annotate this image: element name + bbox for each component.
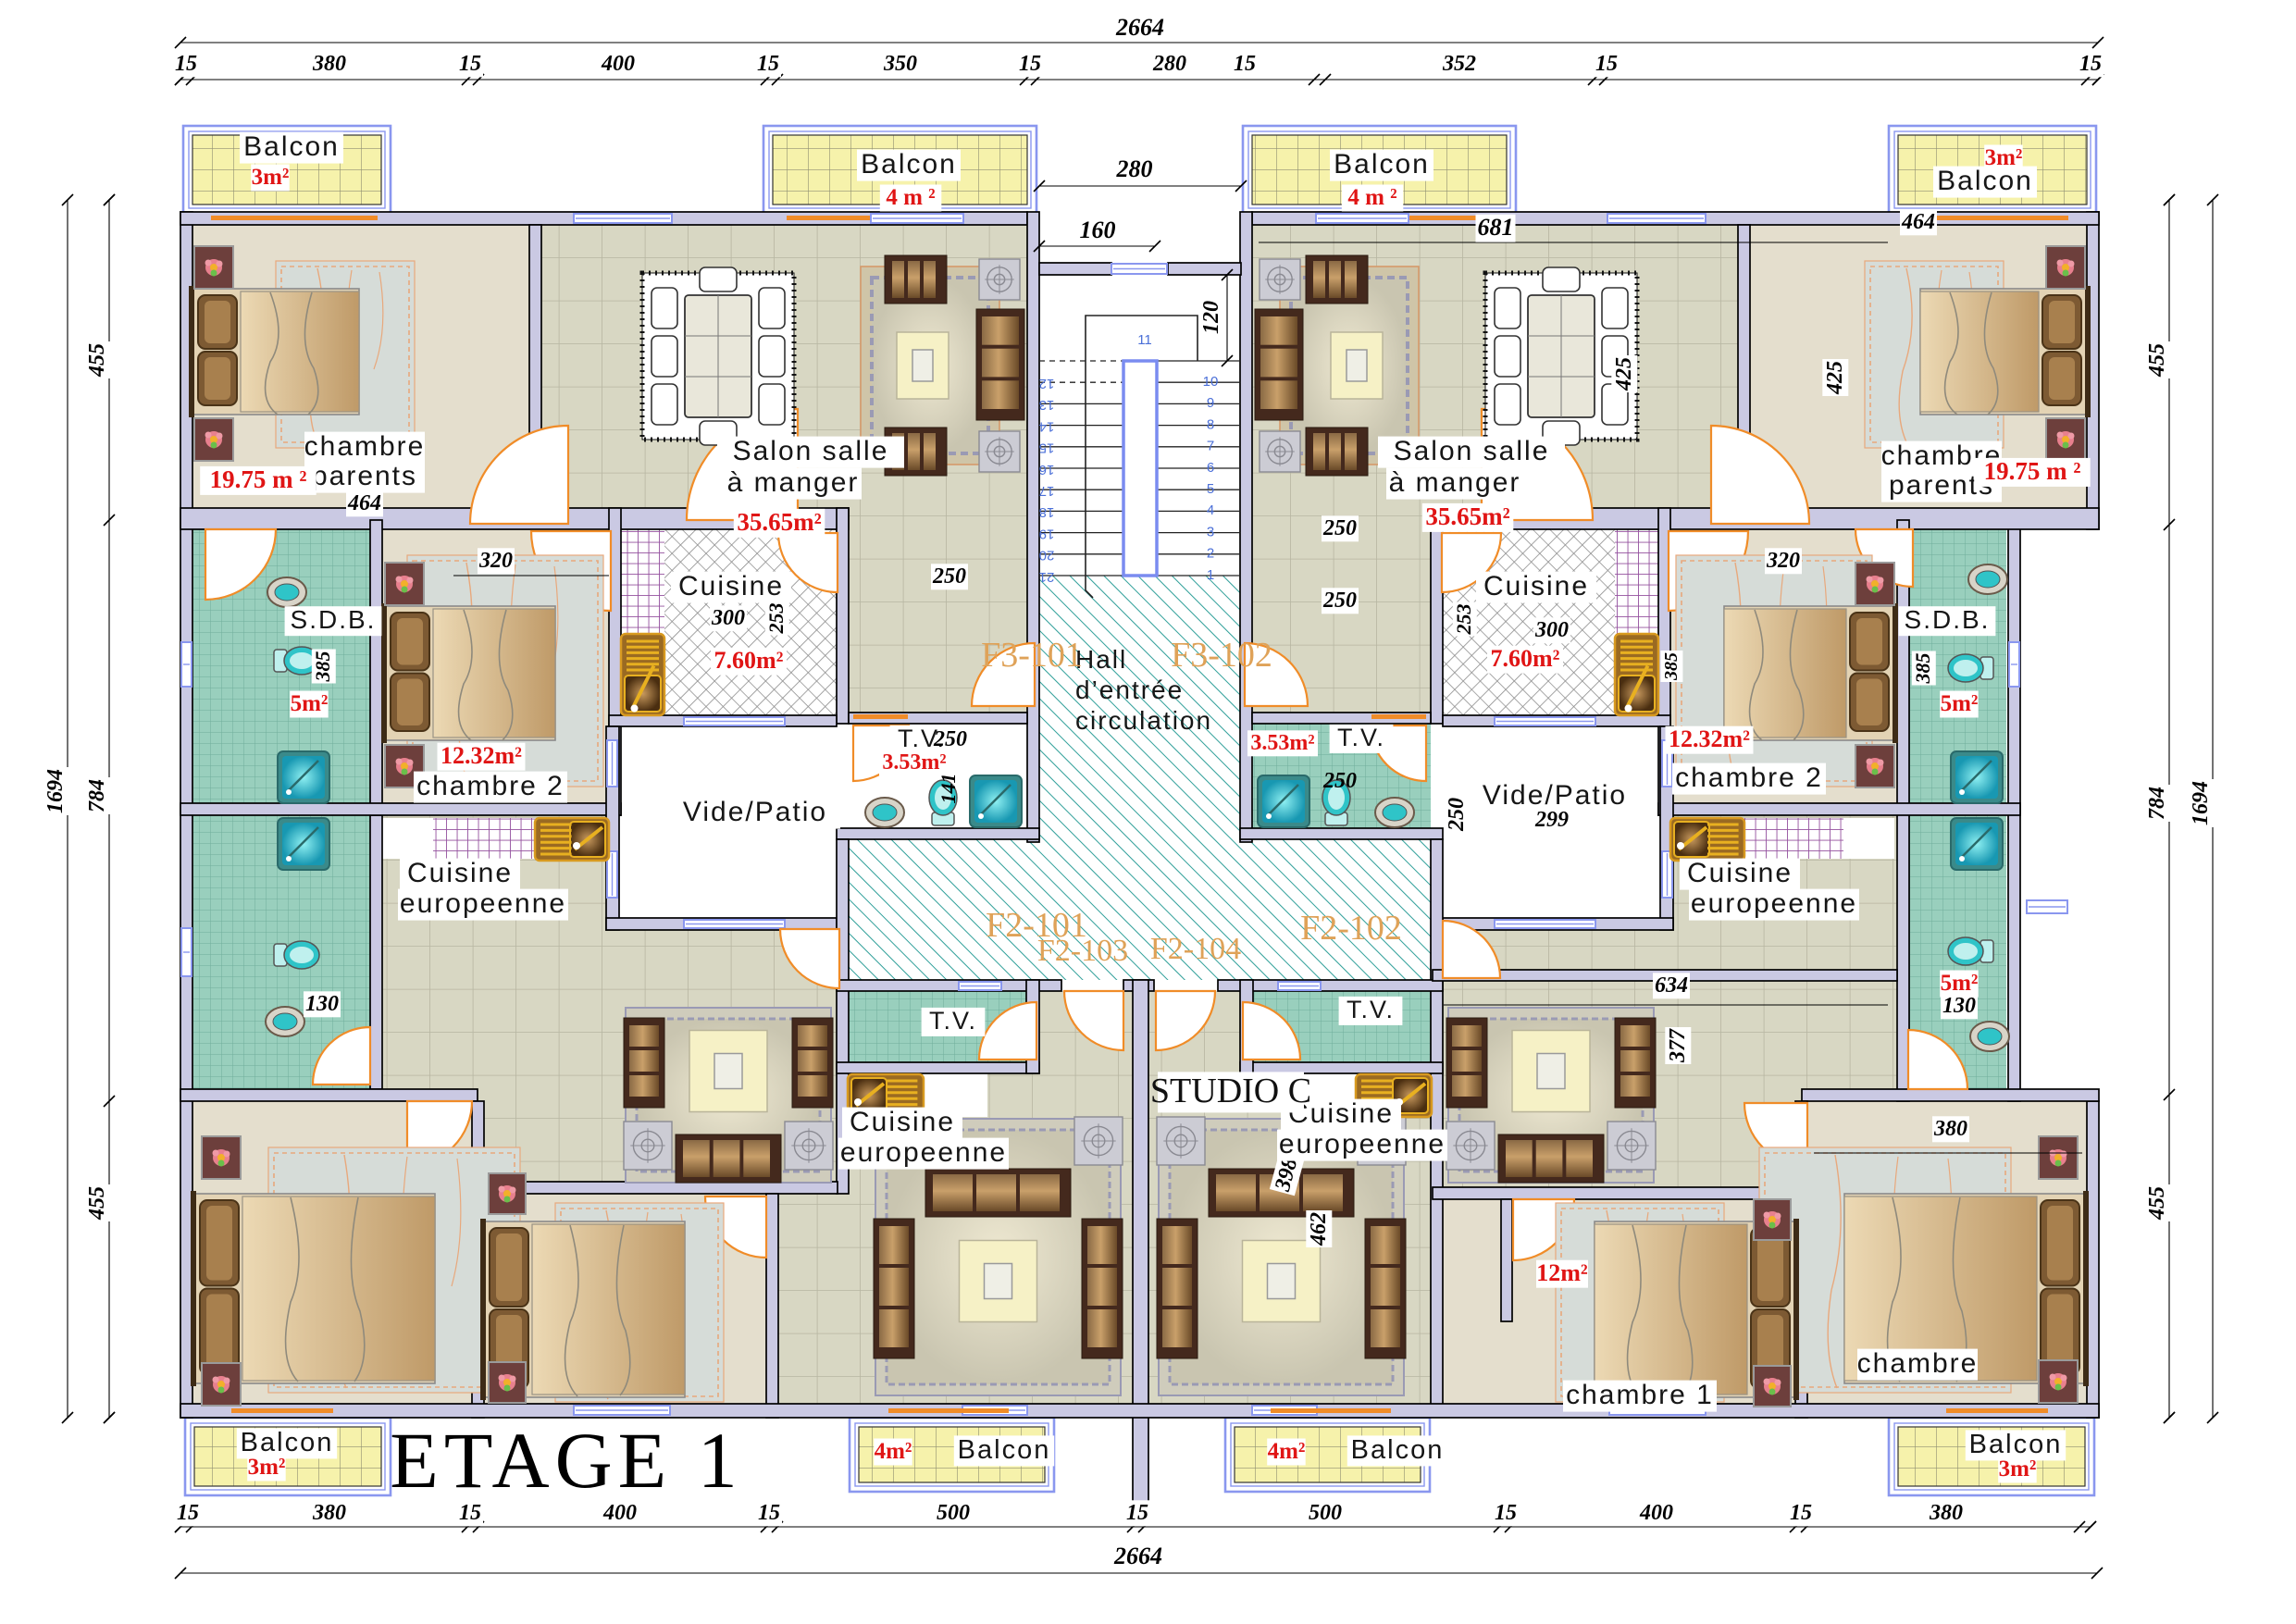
svg-text:2664: 2664 <box>1113 1543 1162 1569</box>
svg-text:Balcon: Balcon <box>1351 1435 1445 1465</box>
svg-text:Vide/Patio: Vide/Patio <box>1483 780 1627 811</box>
svg-text:Balcon: Balcon <box>241 1428 334 1457</box>
svg-text:500: 500 <box>937 1501 970 1525</box>
svg-text:15: 15 <box>1234 52 1256 76</box>
svg-text:280: 280 <box>1116 155 1153 182</box>
svg-text:3m²: 3m² <box>248 1455 286 1480</box>
svg-text:1694: 1694 <box>43 769 68 813</box>
svg-text:130: 130 <box>305 992 339 1016</box>
svg-text:250: 250 <box>933 727 967 751</box>
svg-text:chambre: chambre <box>304 431 426 462</box>
svg-text:16: 16 <box>1039 462 1055 477</box>
svg-text:19.75 m ²: 19.75 m ² <box>1984 457 2081 485</box>
svg-text:circulation: circulation <box>1075 706 1212 735</box>
svg-text:europeenne: europeenne <box>1279 1129 1446 1159</box>
svg-text:425: 425 <box>1823 361 1847 395</box>
svg-text:F2-104: F2-104 <box>1150 932 1241 966</box>
svg-text:3.53m²: 3.53m² <box>882 750 946 775</box>
svg-text:Vide/Patio: Vide/Patio <box>683 797 827 827</box>
svg-text:12m²: 12m² <box>1536 1259 1588 1286</box>
svg-text:4 m ²: 4 m ² <box>886 185 935 210</box>
svg-text:chambre 1: chambre 1 <box>1566 1380 1714 1410</box>
svg-text:Cuisine: Cuisine <box>1483 571 1589 601</box>
svg-text:S.D.B.: S.D.B. <box>1905 605 1991 634</box>
svg-text:3: 3 <box>1207 524 1214 539</box>
svg-text:160: 160 <box>1080 217 1116 243</box>
svg-text:299: 299 <box>1534 808 1569 832</box>
svg-text:21: 21 <box>1039 569 1055 585</box>
svg-text:385: 385 <box>311 651 334 683</box>
svg-text:35.65m²: 35.65m² <box>737 508 821 536</box>
svg-text:Salon salle: Salon salle <box>733 436 889 466</box>
svg-text:380: 380 <box>312 52 346 76</box>
svg-text:Cuisine: Cuisine <box>1687 858 1793 888</box>
svg-text:d’entrée: d’entrée <box>1075 676 1184 704</box>
svg-text:681: 681 <box>1478 214 1514 241</box>
svg-text:Cuisine: Cuisine <box>850 1107 955 1137</box>
svg-text:Cuisine: Cuisine <box>678 571 784 601</box>
svg-text:chambre 2: chambre 2 <box>416 771 565 801</box>
svg-text:634: 634 <box>1655 973 1688 998</box>
svg-text:400: 400 <box>1639 1501 1673 1525</box>
svg-text:4m²: 4m² <box>1268 1439 1306 1464</box>
svg-text:1694: 1694 <box>2189 781 2213 825</box>
svg-text:250: 250 <box>1445 798 1469 832</box>
svg-text:464: 464 <box>347 491 381 515</box>
svg-text:à manger: à manger <box>727 467 860 498</box>
svg-text:120: 120 <box>1199 301 1223 334</box>
svg-text:chambre: chambre <box>1857 1348 1979 1379</box>
svg-text:400: 400 <box>601 52 635 76</box>
svg-text:europeenne: europeenne <box>1691 888 1857 919</box>
svg-text:STUDIO C: STUDIO C <box>1150 1072 1311 1110</box>
svg-text:Balcon: Balcon <box>958 1435 1051 1465</box>
svg-text:377: 377 <box>1666 1028 1690 1063</box>
svg-text:35.65m²: 35.65m² <box>1425 502 1509 530</box>
svg-text:253: 253 <box>764 603 788 635</box>
svg-text:462: 462 <box>1307 1212 1331 1246</box>
svg-text:Balcon: Balcon <box>1937 166 2033 196</box>
svg-text:141: 141 <box>937 774 960 804</box>
svg-text:7.60m²: 7.60m² <box>1491 645 1560 672</box>
svg-text:385: 385 <box>1911 653 1934 685</box>
svg-text:T.V.: T.V. <box>1337 724 1385 751</box>
svg-text:15: 15 <box>757 52 779 76</box>
svg-text:784: 784 <box>2145 787 2169 820</box>
svg-text:T.V.: T.V. <box>929 1007 977 1035</box>
svg-text:5m²: 5m² <box>1941 971 1979 996</box>
svg-text:Hall: Hall <box>1075 645 1127 674</box>
svg-text:784: 784 <box>85 779 109 812</box>
svg-text:17: 17 <box>1039 483 1055 499</box>
svg-text:352: 352 <box>1442 52 1476 76</box>
svg-text:250: 250 <box>932 564 966 589</box>
svg-text:15: 15 <box>459 52 481 76</box>
svg-text:380: 380 <box>1933 1117 1967 1141</box>
svg-text:300: 300 <box>711 606 745 630</box>
svg-text:5: 5 <box>1207 481 1214 497</box>
svg-text:7: 7 <box>1207 439 1214 454</box>
svg-text:20: 20 <box>1039 548 1055 564</box>
svg-text:4m²: 4m² <box>875 1439 912 1464</box>
svg-text:Balcon: Balcon <box>243 131 340 162</box>
svg-text:320: 320 <box>478 549 513 573</box>
svg-text:425: 425 <box>1612 357 1636 391</box>
svg-text:7.60m²: 7.60m² <box>714 647 784 674</box>
svg-text:Cuisine: Cuisine <box>407 858 513 888</box>
svg-text:253: 253 <box>1452 604 1475 636</box>
svg-text:15: 15 <box>177 1501 199 1525</box>
svg-text:280: 280 <box>1152 52 1186 76</box>
svg-text:11: 11 <box>1137 332 1152 348</box>
svg-text:T.V.: T.V. <box>1347 996 1395 1023</box>
svg-text:464: 464 <box>1901 210 1935 234</box>
svg-text:F3-102: F3-102 <box>1171 636 1272 675</box>
svg-text:5m²: 5m² <box>291 691 329 716</box>
svg-text:12: 12 <box>1039 376 1055 391</box>
svg-text:15: 15 <box>1495 1501 1517 1525</box>
svg-text:19: 19 <box>1039 526 1055 541</box>
svg-text:250: 250 <box>1322 516 1357 540</box>
svg-text:130: 130 <box>1942 994 1976 1018</box>
svg-text:455: 455 <box>2145 1186 2169 1221</box>
svg-text:8: 8 <box>1207 416 1214 432</box>
svg-text:500: 500 <box>1309 1501 1342 1525</box>
svg-text:europeenne: europeenne <box>840 1137 1007 1168</box>
svg-text:250: 250 <box>1322 589 1357 613</box>
svg-text:15: 15 <box>1595 52 1618 76</box>
svg-text:ETAGE 1: ETAGE 1 <box>390 1416 742 1505</box>
svg-text:380: 380 <box>312 1501 346 1525</box>
svg-text:13: 13 <box>1039 397 1055 413</box>
svg-text:europeenne: europeenne <box>400 888 566 919</box>
svg-text:15: 15 <box>758 1501 780 1525</box>
svg-text:385: 385 <box>1661 652 1682 681</box>
svg-text:F2-103: F2-103 <box>1037 934 1128 968</box>
svg-text:à manger: à manger <box>1389 467 1521 498</box>
svg-text:14: 14 <box>1039 418 1055 434</box>
svg-text:3.53m²: 3.53m² <box>1250 731 1314 755</box>
svg-text:15: 15 <box>1790 1501 1812 1525</box>
svg-text:9: 9 <box>1207 395 1214 411</box>
svg-text:3m²: 3m² <box>252 165 290 190</box>
svg-text:1: 1 <box>1207 567 1214 583</box>
svg-text:19.75 m ²: 19.75 m ² <box>210 465 307 493</box>
svg-text:parents: parents <box>312 461 417 491</box>
svg-text:250: 250 <box>1322 769 1357 793</box>
svg-text:15: 15 <box>1126 1501 1148 1525</box>
svg-text:455: 455 <box>85 1186 109 1221</box>
svg-text:Balcon: Balcon <box>1969 1430 2063 1459</box>
svg-text:320: 320 <box>1766 549 1800 573</box>
svg-text:Balcon: Balcon <box>1334 149 1430 180</box>
svg-text:15: 15 <box>175 52 197 76</box>
svg-text:4: 4 <box>1207 502 1214 518</box>
svg-text:15: 15 <box>1039 440 1055 456</box>
svg-text:15: 15 <box>1019 52 1041 76</box>
svg-text:F2-102: F2-102 <box>1300 909 1402 948</box>
svg-text:380: 380 <box>1929 1501 1963 1525</box>
svg-text:2664: 2664 <box>1115 14 1164 41</box>
svg-text:10: 10 <box>1203 374 1219 390</box>
svg-text:12.32m²: 12.32m² <box>441 742 522 769</box>
svg-text:3m²: 3m² <box>1999 1457 2037 1481</box>
svg-text:350: 350 <box>883 52 917 76</box>
svg-text:F3-101: F3-101 <box>981 636 1083 675</box>
svg-text:18: 18 <box>1039 504 1055 520</box>
svg-text:Balcon: Balcon <box>861 149 957 180</box>
svg-text:455: 455 <box>2145 343 2169 378</box>
svg-text:15: 15 <box>2079 52 2102 76</box>
svg-text:12.32m²: 12.32m² <box>1669 725 1750 752</box>
svg-text:chambre 2: chambre 2 <box>1675 762 1823 793</box>
svg-text:300: 300 <box>1534 618 1569 642</box>
svg-text:S.D.B.: S.D.B. <box>291 605 377 634</box>
svg-text:2: 2 <box>1207 546 1214 562</box>
svg-text:4 m ²: 4 m ² <box>1347 185 1396 210</box>
svg-text:5m²: 5m² <box>1941 691 1979 716</box>
svg-text:Salon salle: Salon salle <box>1394 436 1550 466</box>
svg-text:6: 6 <box>1207 460 1214 476</box>
svg-text:455: 455 <box>85 343 109 378</box>
